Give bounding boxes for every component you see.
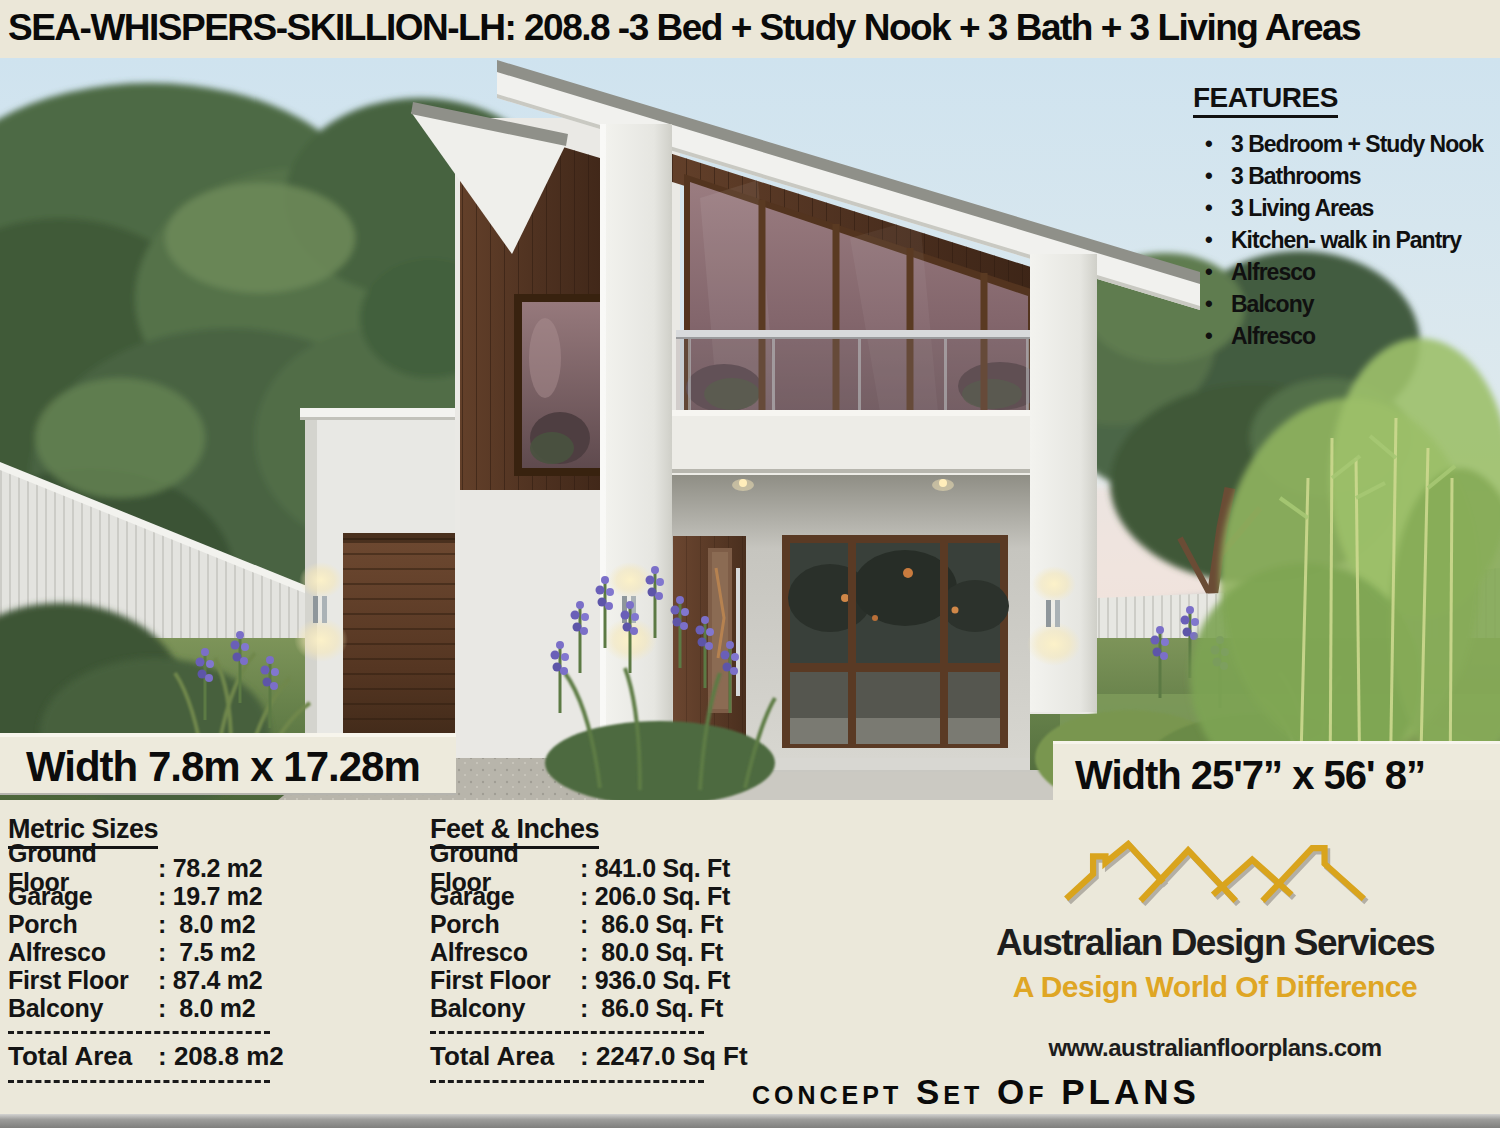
table-row: Porch: 86.0 Sq. Ft bbox=[430, 910, 748, 938]
bullet-icon: • bbox=[1193, 163, 1231, 189]
brand-tagline: A Design World Of Difference bbox=[955, 970, 1475, 1004]
center-pillar bbox=[600, 124, 672, 774]
bottom-edge-bar bbox=[0, 1114, 1500, 1128]
table-row: Balcony: 8.0 m2 bbox=[8, 994, 284, 1022]
plans-line: concept Set Of PLANS bbox=[752, 1072, 1200, 1112]
metric-total-row: Total Area: 208.8 m2 bbox=[8, 1041, 284, 1071]
feature-item: •Kitchen- walk in Pantry bbox=[1193, 224, 1500, 256]
table-row: Balcony: 86.0 Sq. Ft bbox=[430, 994, 748, 1022]
feature-item: •3 Bathrooms bbox=[1193, 160, 1500, 192]
table-row: Garage: 19.7 m2 bbox=[8, 882, 284, 910]
metric-sizes-table: Metric Sizes Ground Floor: 78.2 m2 Garag… bbox=[8, 814, 284, 1090]
imperial-sizes-table: Feet & Inches Ground Floor: 841.0 Sq. Ft… bbox=[430, 814, 748, 1090]
flyer-page: SEA-WHISPERS-SKILLION-LH: 208.8 -3 Bed +… bbox=[0, 0, 1500, 1128]
table-row: Ground Floor: 78.2 m2 bbox=[8, 854, 284, 882]
bullet-icon: • bbox=[1193, 323, 1231, 349]
dashed-divider bbox=[430, 1080, 704, 1083]
feature-item: •3 Living Areas bbox=[1193, 192, 1500, 224]
feature-item: •Balcony bbox=[1193, 288, 1500, 320]
page-title: SEA-WHISPERS-SKILLION-LH: 208.8 -3 Bed +… bbox=[0, 0, 1500, 58]
feature-item: •Alfresco bbox=[1193, 320, 1500, 352]
feature-item: •3 Bedroom + Study Nook bbox=[1193, 128, 1500, 160]
bullet-icon: • bbox=[1193, 195, 1231, 221]
table-row: Garage: 206.0 Sq. Ft bbox=[430, 882, 748, 910]
dashed-divider bbox=[430, 1031, 704, 1034]
width-label-imperial: Width 25'7” x 56' 8” bbox=[1053, 741, 1500, 807]
width-label-metric: Width 7.8m x 17.28m bbox=[0, 733, 456, 795]
info-panel: Metric Sizes Ground Floor: 78.2 m2 Garag… bbox=[0, 800, 1500, 1128]
dashed-divider bbox=[8, 1031, 270, 1034]
bullet-icon: • bbox=[1193, 227, 1231, 253]
brand-website: www.australianfloorplans.com bbox=[955, 1034, 1475, 1062]
table-row: Alfresco: 7.5 m2 bbox=[8, 938, 284, 966]
brand-block: Australian Design Services A Design Worl… bbox=[955, 840, 1475, 1062]
dashed-divider bbox=[8, 1080, 270, 1083]
ground-window bbox=[782, 535, 1009, 748]
bullet-icon: • bbox=[1193, 291, 1231, 317]
bullet-icon: • bbox=[1193, 131, 1231, 157]
features-title: FEATURES bbox=[1193, 82, 1338, 118]
imperial-total-row: Total Area: 2247.0 Sq Ft bbox=[430, 1041, 748, 1071]
balcony-railing bbox=[676, 330, 1038, 412]
feature-item: •Alfresco bbox=[1193, 256, 1500, 288]
table-row: Porch: 8.0 m2 bbox=[8, 910, 284, 938]
rooflines-logo-icon bbox=[1060, 840, 1370, 906]
table-row: Ground Floor: 841.0 Sq. Ft bbox=[430, 854, 748, 882]
table-row: Alfresco: 80.0 Sq. Ft bbox=[430, 938, 748, 966]
bullet-icon: • bbox=[1193, 259, 1231, 285]
features-list: FEATURES •3 Bedroom + Study Nook •3 Bath… bbox=[1193, 82, 1500, 352]
table-row: First Floor: 87.4 m2 bbox=[8, 966, 284, 994]
table-row: First Floor: 936.0 Sq. Ft bbox=[430, 966, 748, 994]
brand-name: Australian Design Services bbox=[955, 922, 1475, 964]
house-render-photo: FEATURES •3 Bedroom + Study Nook •3 Bath… bbox=[0, 58, 1500, 800]
